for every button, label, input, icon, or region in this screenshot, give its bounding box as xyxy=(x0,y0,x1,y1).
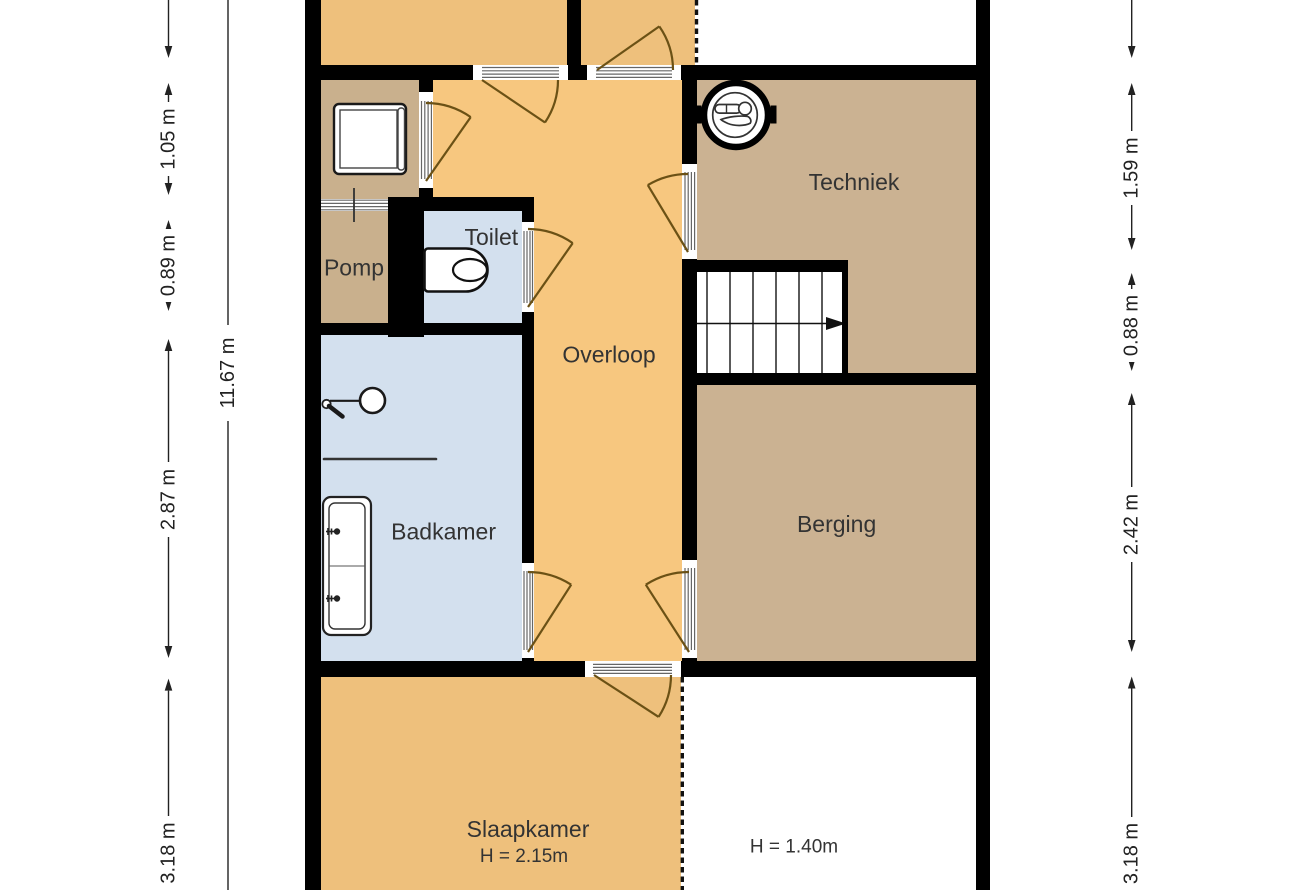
svg-text:11.67 m: 11.67 m xyxy=(217,338,239,409)
svg-text:Techniek: Techniek xyxy=(809,169,900,195)
svg-text:Toilet: Toilet xyxy=(464,224,518,250)
svg-text:1.59 m: 1.59 m xyxy=(1121,137,1143,198)
svg-text:0.88 m: 0.88 m xyxy=(1121,295,1143,356)
svg-text:Badkamer: Badkamer xyxy=(391,519,496,545)
svg-text:3.18 m: 3.18 m xyxy=(158,822,180,883)
svg-text:0.89 m: 0.89 m xyxy=(158,235,180,296)
svg-text:Overloop: Overloop xyxy=(562,342,655,368)
svg-text:2.42 m: 2.42 m xyxy=(1121,494,1143,555)
svg-text:Berging: Berging xyxy=(797,511,876,537)
svg-text:3.18 m: 3.18 m xyxy=(1121,823,1143,884)
svg-text:H = 1.40m: H = 1.40m xyxy=(750,837,838,858)
svg-text:H = 2.15m: H = 2.15m xyxy=(480,846,568,867)
svg-text:Slaapkamer: Slaapkamer xyxy=(467,816,590,842)
svg-text:Pomp: Pomp xyxy=(324,255,384,281)
svg-text:2.87 m: 2.87 m xyxy=(158,469,180,530)
svg-text:1.05 m: 1.05 m xyxy=(158,108,180,169)
